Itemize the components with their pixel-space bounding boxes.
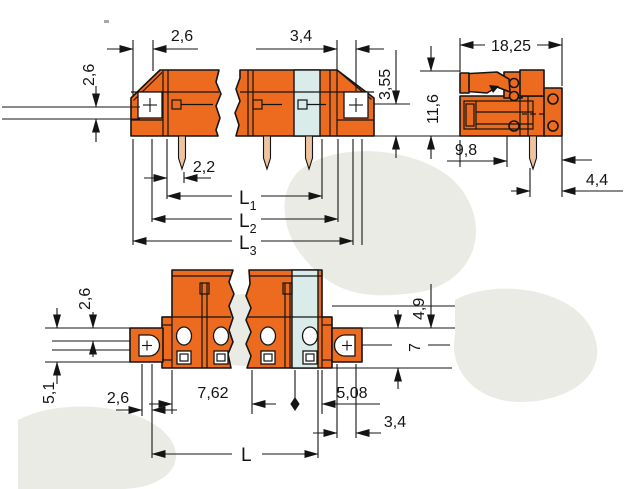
front-internal-lines (131, 70, 374, 136)
dim-label-side-depth: 9,8 (455, 142, 477, 159)
plan-body-right (246, 270, 332, 368)
dim-label-plan-pitch: 7,62 (197, 385, 228, 402)
dim-label-front-right: 3,55 (377, 69, 394, 100)
dim-label-plan-flange-height: 7 (407, 343, 424, 352)
dim-front-right (374, 50, 456, 158)
dim-label-front-top-right: 3,4 (290, 28, 312, 45)
side-body (460, 96, 545, 136)
dim-label-plan-left-height: 5,1 (41, 382, 58, 404)
dim-label-plan-end-pitch: 5,08 (336, 385, 367, 402)
dim-label-front-left: 2,6 (81, 64, 98, 86)
dim-label-plan-length: L (241, 445, 252, 466)
side-left-block (460, 73, 469, 93)
dim-label-side-pin-offset: 4,4 (586, 172, 608, 189)
dim-label-plan-flange-width: 2,6 (107, 390, 129, 407)
solder-pin-1 (179, 136, 186, 169)
dim-label-plan-depth: 4,9 (411, 298, 428, 320)
connector-dimension-drawing: 2,6 2,6 3,4 3,55 (0, 0, 627, 489)
dim-plan-center-mark (291, 370, 299, 410)
dim-label-front-top: 2,6 (171, 28, 193, 45)
dim-label-plan-hole-offset: 3,4 (384, 414, 406, 431)
dim-front-left (2, 86, 140, 142)
dim-label-side-width: 18,25 (491, 38, 531, 55)
side-top-block (520, 70, 544, 96)
dim-label-l1: L1 (239, 188, 257, 213)
dim-label-side-height: 11,6 (425, 94, 442, 124)
dim-label-front-pin: 2,2 (193, 159, 215, 176)
dim-plan-length (152, 370, 318, 458)
side-solder-pin (530, 136, 537, 169)
technical-drawing-page: 2,6 2,6 3,4 3,55 (0, 0, 627, 489)
dim-plan-left-lines (45, 308, 130, 384)
solder-pin-2 (264, 136, 271, 169)
dim-label-plan-step: 2,6 (77, 288, 94, 310)
dim-label-l3: L3 (239, 233, 257, 258)
